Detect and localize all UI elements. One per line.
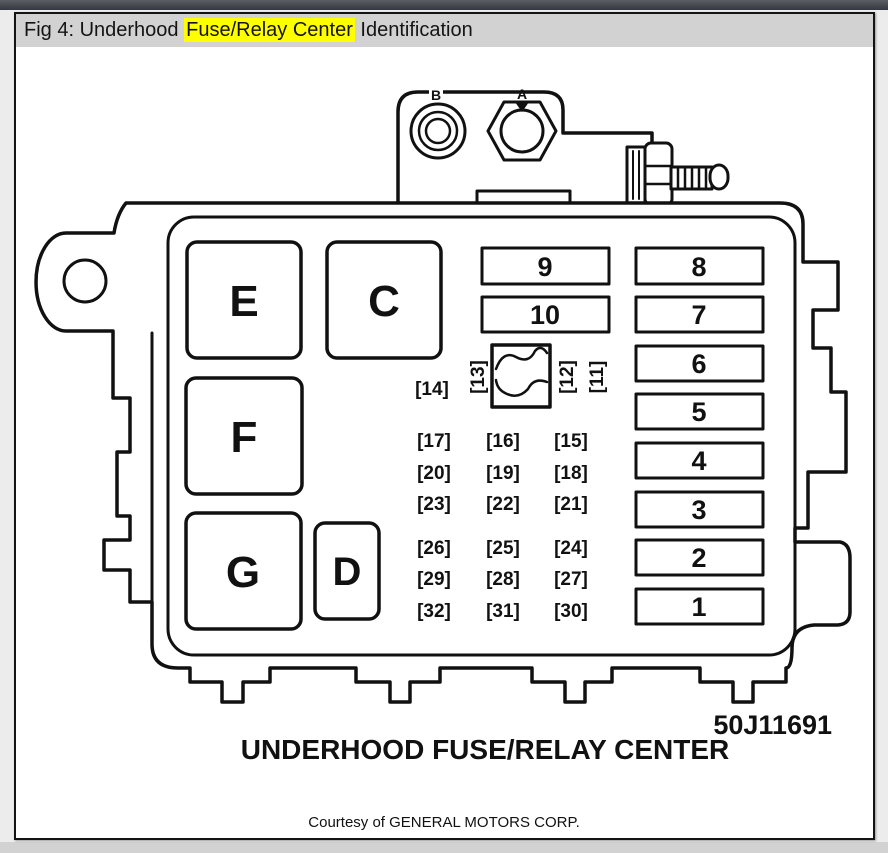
fuse-box-drawing: B A E C F G <box>16 47 873 836</box>
relay-d: D <box>315 523 379 619</box>
slot-2-label: 2 <box>691 543 706 573</box>
fuse-label: [30] <box>554 601 588 622</box>
fuse-label: [32] <box>417 601 451 622</box>
relay-g: G <box>186 513 301 629</box>
fuse-label: [15] <box>554 431 588 452</box>
slot-8-label: 8 <box>691 252 706 282</box>
slot-5: 5 <box>636 394 763 429</box>
fuse-label: [29] <box>417 569 451 590</box>
slot-2: 2 <box>636 540 763 575</box>
relay-e-label: E <box>229 277 258 326</box>
part-number: 50J11691 <box>713 710 832 740</box>
slot-1: 1 <box>636 589 763 624</box>
slot-10-label: 10 <box>530 300 560 330</box>
relay-f-label: F <box>231 413 258 462</box>
diagram-caption: UNDERHOOD FUSE/RELAY CENTER <box>241 734 730 765</box>
fuse-label: [22] <box>486 494 520 515</box>
figure-title-prefix: Fig 4: Underhood <box>24 19 184 41</box>
fuse-label: [14] <box>415 379 449 400</box>
fuse-label: [21] <box>554 494 588 515</box>
slot-1-label: 1 <box>691 592 706 622</box>
slot-6-label: 6 <box>691 349 706 379</box>
slot-9: 9 <box>482 248 609 284</box>
slot-4: 4 <box>636 443 763 478</box>
fuse-label: [13] <box>468 360 489 394</box>
fastener-b-label: B <box>431 87 441 103</box>
fuse-label: [25] <box>486 538 520 559</box>
fuse-label: [19] <box>486 463 520 484</box>
relay-d-label: D <box>333 550 362 594</box>
fuse-label: [12] <box>557 360 578 394</box>
slot-7-label: 7 <box>691 300 706 330</box>
fuse-label: [31] <box>486 601 520 622</box>
figure-title-bar: Fig 4: Underhood Fuse/Relay Center Ident… <box>16 14 873 47</box>
fuse-label: [27] <box>554 569 588 590</box>
window-top-bar <box>0 0 888 10</box>
figure-title-suffix: Identification <box>355 19 473 41</box>
slot-4-label: 4 <box>691 446 706 476</box>
fuse-label: [24] <box>554 538 588 559</box>
fuse-label: [23] <box>417 494 451 515</box>
slot-5-label: 5 <box>691 397 706 427</box>
fuse-label: [17] <box>417 431 451 452</box>
mounting-bolt <box>627 143 728 205</box>
relay-c-label: C <box>368 277 400 326</box>
slot-9-label: 9 <box>537 252 552 282</box>
fuse-box-diagram: B A E C F G <box>16 47 873 836</box>
fuse-label: [18] <box>554 463 588 484</box>
mini-relay <box>492 345 550 407</box>
relay-g-label: G <box>226 548 260 597</box>
relay-e: E <box>187 242 301 358</box>
relay-f: F <box>186 378 302 494</box>
figure-title-highlight: Fuse/Relay Center <box>184 18 355 42</box>
slot-3: 3 <box>636 492 763 527</box>
fuse-label: [16] <box>486 431 520 452</box>
slot-6: 6 <box>636 346 763 381</box>
courtesy-note: Courtesy of GENERAL MOTORS CORP. <box>308 814 579 831</box>
slot-8: 8 <box>636 248 763 284</box>
fuse-label: [28] <box>486 569 520 590</box>
slot-7: 7 <box>636 297 763 332</box>
page-bottom-margin <box>0 842 888 853</box>
fuse-label: [26] <box>417 538 451 559</box>
slot-3-label: 3 <box>691 495 706 525</box>
fuse-label: [20] <box>417 463 451 484</box>
fastener-a-label: A <box>517 86 527 102</box>
fuse-label: [11] <box>587 361 608 394</box>
slot-10: 10 <box>482 297 609 332</box>
relay-c: C <box>327 242 441 358</box>
figure-frame: Fig 4: Underhood Fuse/Relay Center Ident… <box>14 12 875 840</box>
